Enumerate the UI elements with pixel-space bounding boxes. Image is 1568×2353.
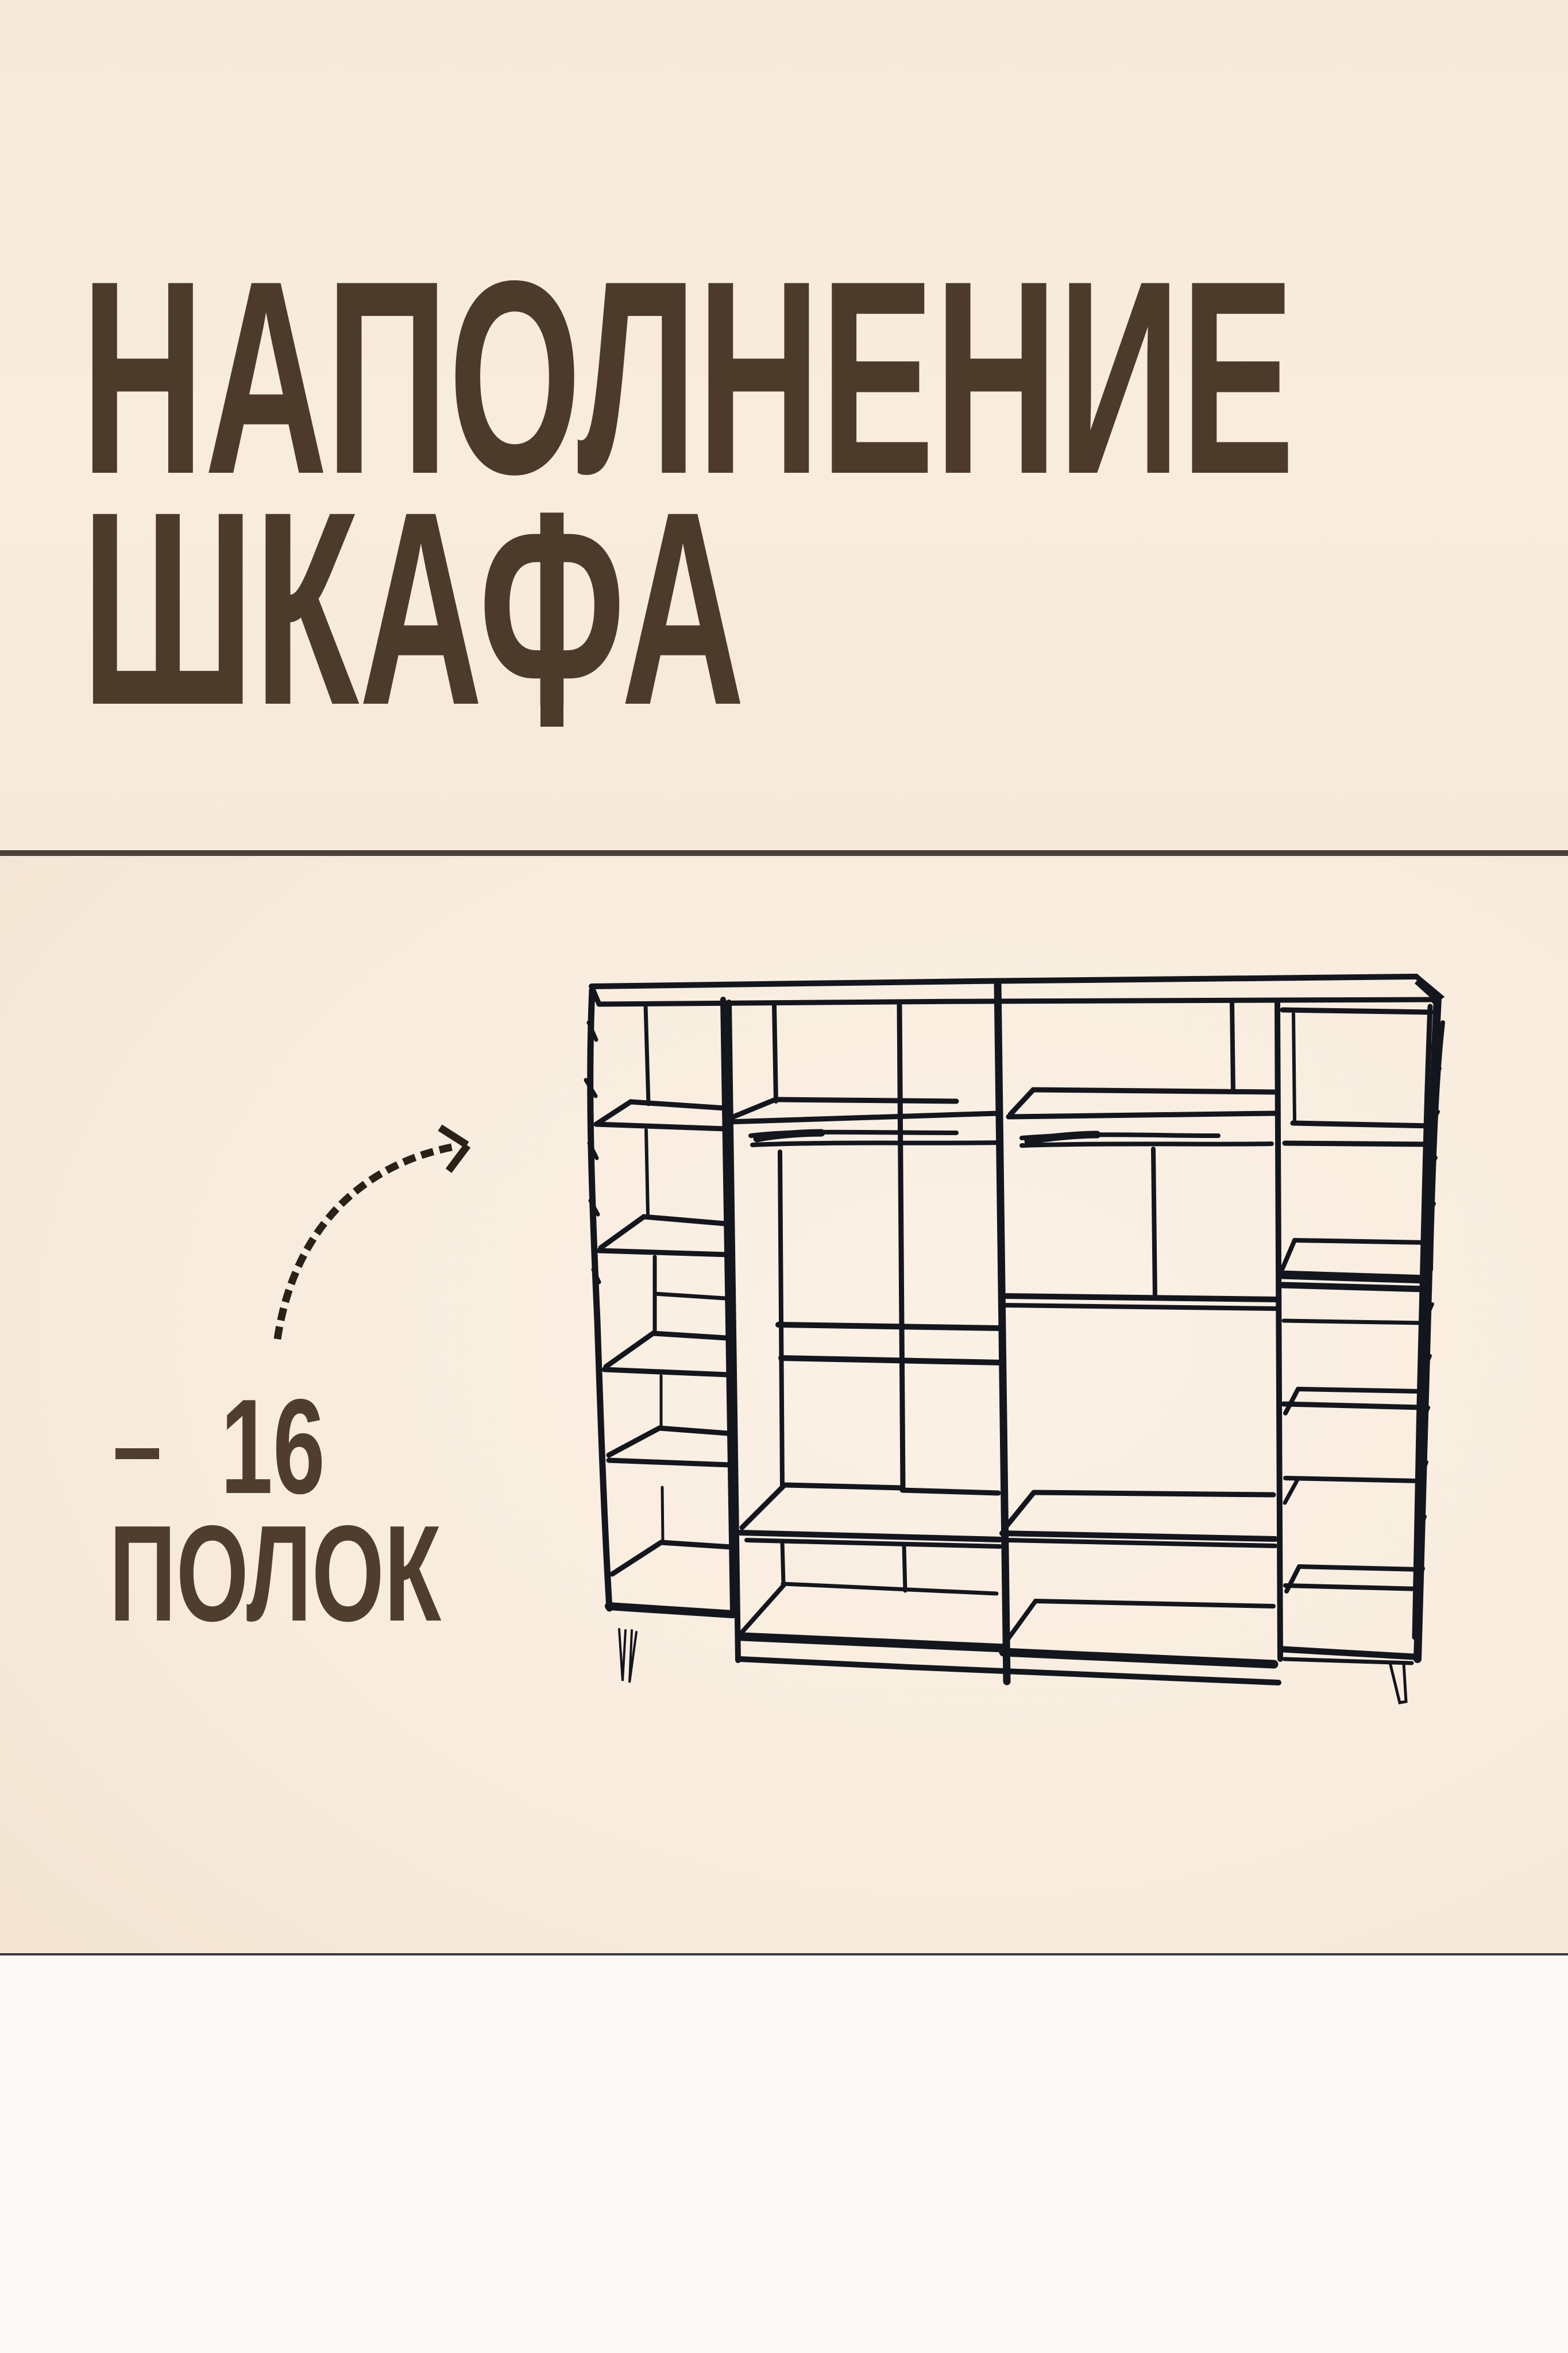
svg-text:ПОЛОК: ПОЛОК	[109, 1498, 441, 1650]
svg-text:ШКАФА: ШКАФА	[82, 454, 745, 762]
